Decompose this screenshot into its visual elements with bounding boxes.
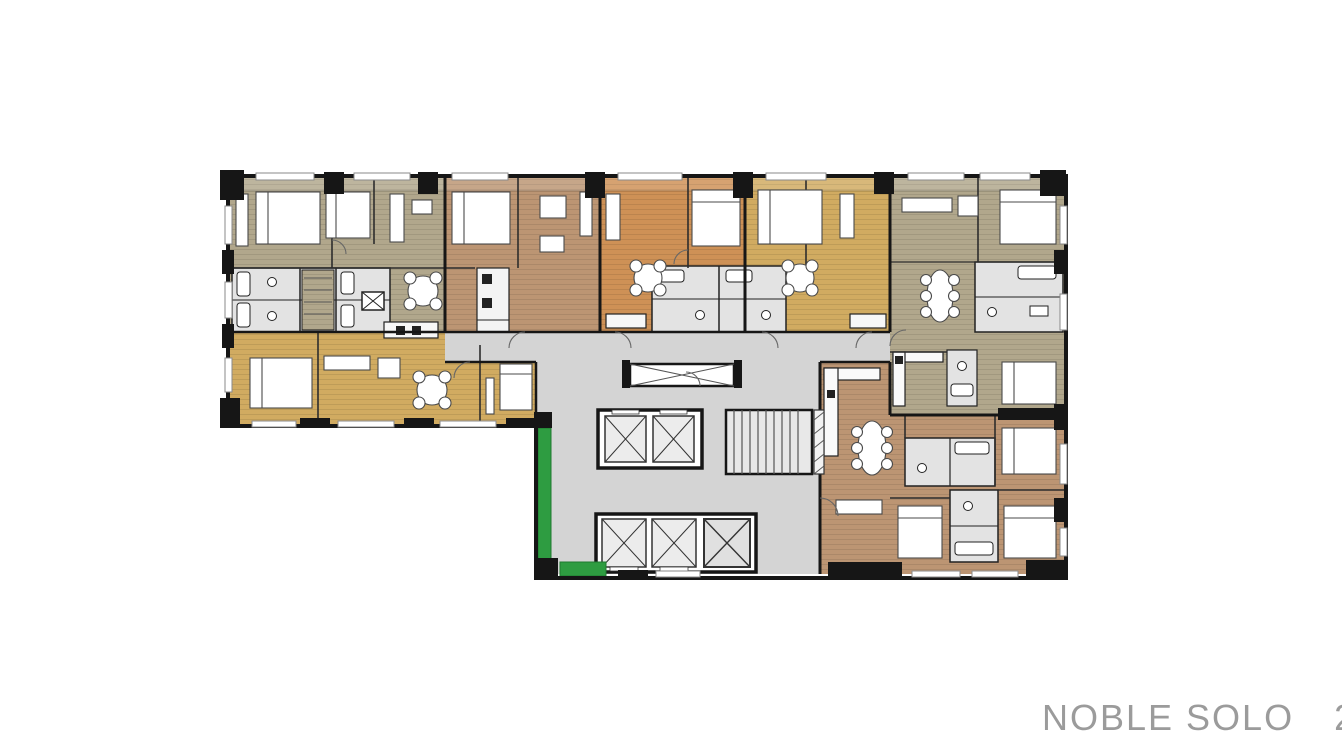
armchair-icon: [958, 196, 978, 216]
floor-number-label: 23: [1334, 697, 1342, 738]
kitchen-b: [477, 268, 509, 332]
window-icon: [656, 571, 700, 577]
bed-icon: [326, 192, 370, 238]
bath-cluster-a: [232, 268, 390, 332]
column-icon: [1054, 404, 1066, 430]
wall-segment: [828, 562, 902, 578]
toilet-icon: [762, 311, 771, 320]
wardrobe-icon: [236, 194, 248, 246]
window-icon: [440, 421, 496, 427]
bathtub-icon: [951, 384, 973, 396]
column-icon: [585, 172, 605, 198]
garden-strip-horizontal: [560, 562, 606, 576]
window-icon: [452, 173, 508, 180]
elevator-icon: [653, 410, 694, 462]
bathtub-icon: [1018, 266, 1056, 279]
garden-strip-vertical: [538, 428, 551, 562]
window-icon: [766, 173, 826, 180]
window-icon: [338, 421, 394, 427]
sofa-icon: [840, 194, 854, 238]
window-icon: [1060, 444, 1067, 484]
bed-icon: [898, 506, 942, 558]
toilet-icon: [696, 311, 705, 320]
toilet-icon: [268, 312, 277, 321]
window-icon: [1060, 528, 1067, 556]
sofa-icon: [606, 194, 620, 240]
sink-icon: [1030, 306, 1048, 316]
window-icon: [225, 282, 232, 318]
bed-icon: [256, 192, 320, 244]
project-name-label: NOBLE SOLO: [1042, 697, 1294, 738]
tv-cabinet-icon: [412, 200, 432, 214]
armchair-icon: [540, 196, 566, 218]
bed-icon: [452, 192, 510, 244]
bed-icon: [692, 190, 740, 246]
wall-segment: [1026, 560, 1066, 578]
sink-icon: [895, 356, 903, 364]
window-icon: [618, 173, 682, 180]
wall-segment: [404, 418, 434, 428]
tv-cabinet-icon: [486, 378, 494, 414]
dining-table-icon: [921, 270, 960, 322]
bathtub-icon: [955, 542, 993, 555]
desk-icon: [540, 236, 564, 252]
floor-plan-drawing: [0, 0, 1342, 754]
column-icon: [1054, 498, 1066, 522]
bathtub-icon: [726, 270, 752, 282]
kitchen-g: [384, 322, 438, 338]
wall-segment: [506, 418, 536, 428]
sofa-icon: [836, 500, 882, 514]
bathtub-icon: [237, 272, 250, 296]
column-icon: [1054, 250, 1066, 274]
toilet-icon: [988, 308, 997, 317]
window-icon: [908, 173, 964, 180]
dining-table-icon: [782, 260, 818, 296]
kitchen-c: [606, 314, 646, 328]
column-icon: [220, 170, 244, 200]
bathtub-icon: [341, 305, 354, 327]
bed-icon: [250, 358, 312, 408]
bath-cluster-f1: [905, 438, 995, 486]
bath-e-lower: [947, 350, 977, 406]
window-icon: [252, 421, 296, 427]
sink-icon: [412, 326, 421, 335]
bed-icon: [1002, 428, 1056, 474]
dining-table-icon: [630, 260, 666, 296]
sofa-icon: [324, 356, 370, 370]
bed-icon: [1004, 506, 1056, 558]
armchair-icon: [378, 358, 400, 378]
dining-table-icon: [852, 421, 893, 475]
bath-cluster-f2: [950, 490, 998, 562]
bathtub-icon: [341, 272, 354, 294]
window-icon: [354, 173, 410, 180]
stairwell: [726, 410, 812, 474]
hatched-shaft: [814, 410, 824, 474]
window-icon: [972, 571, 1018, 577]
toilet-icon: [964, 502, 973, 511]
column-icon: [222, 324, 234, 348]
sofa-icon: [902, 198, 952, 212]
service-elevator-icon: [704, 519, 750, 567]
bed-icon: [500, 364, 532, 410]
window-icon: [225, 358, 232, 392]
dining-table-icon: [404, 272, 442, 310]
stove-icon: [482, 298, 492, 308]
kitchen-d: [850, 314, 886, 328]
column-icon: [733, 172, 753, 198]
duct-shaft: [622, 360, 742, 388]
elevator-bank-lower: [596, 514, 756, 572]
bath-cluster-e: [975, 262, 1063, 332]
stove-icon: [396, 326, 405, 335]
window-icon: [1060, 206, 1067, 244]
plan-caption: NOBLE SOLO23: [1042, 697, 1342, 739]
bath-cluster-cd: [652, 266, 786, 332]
sink-icon: [827, 390, 835, 398]
bed-icon: [1000, 190, 1056, 244]
elevator-bank-upper: [598, 410, 702, 468]
sofa-icon: [580, 192, 592, 236]
bed-icon: [1002, 362, 1056, 404]
elevator-icon: [602, 519, 646, 571]
column-icon: [324, 172, 344, 194]
stove-icon: [482, 274, 492, 284]
toilet-icon: [268, 278, 277, 287]
column-icon: [874, 172, 894, 194]
bathtub-icon: [237, 303, 250, 327]
column-icon: [1040, 170, 1066, 196]
floor-plan-page: NOBLE SOLO23: [0, 0, 1342, 754]
window-icon: [912, 571, 960, 577]
bed-icon: [758, 190, 822, 244]
corridor-zone: [445, 332, 890, 362]
wall-segment: [300, 418, 330, 428]
toilet-icon: [958, 362, 967, 371]
toilet-icon: [918, 464, 927, 473]
column-icon: [418, 172, 438, 194]
column-icon: [222, 250, 234, 274]
wall-segment: [618, 570, 648, 580]
elevator-icon: [652, 519, 696, 571]
elevator-icon: [605, 410, 646, 462]
window-icon: [980, 173, 1030, 180]
column-icon: [220, 398, 240, 428]
window-icon: [256, 173, 314, 180]
window-icon: [1060, 294, 1067, 330]
bathtub-icon: [955, 442, 989, 454]
window-icon: [225, 206, 232, 244]
dining-table-icon: [413, 371, 451, 409]
sofa-icon: [390, 194, 404, 242]
